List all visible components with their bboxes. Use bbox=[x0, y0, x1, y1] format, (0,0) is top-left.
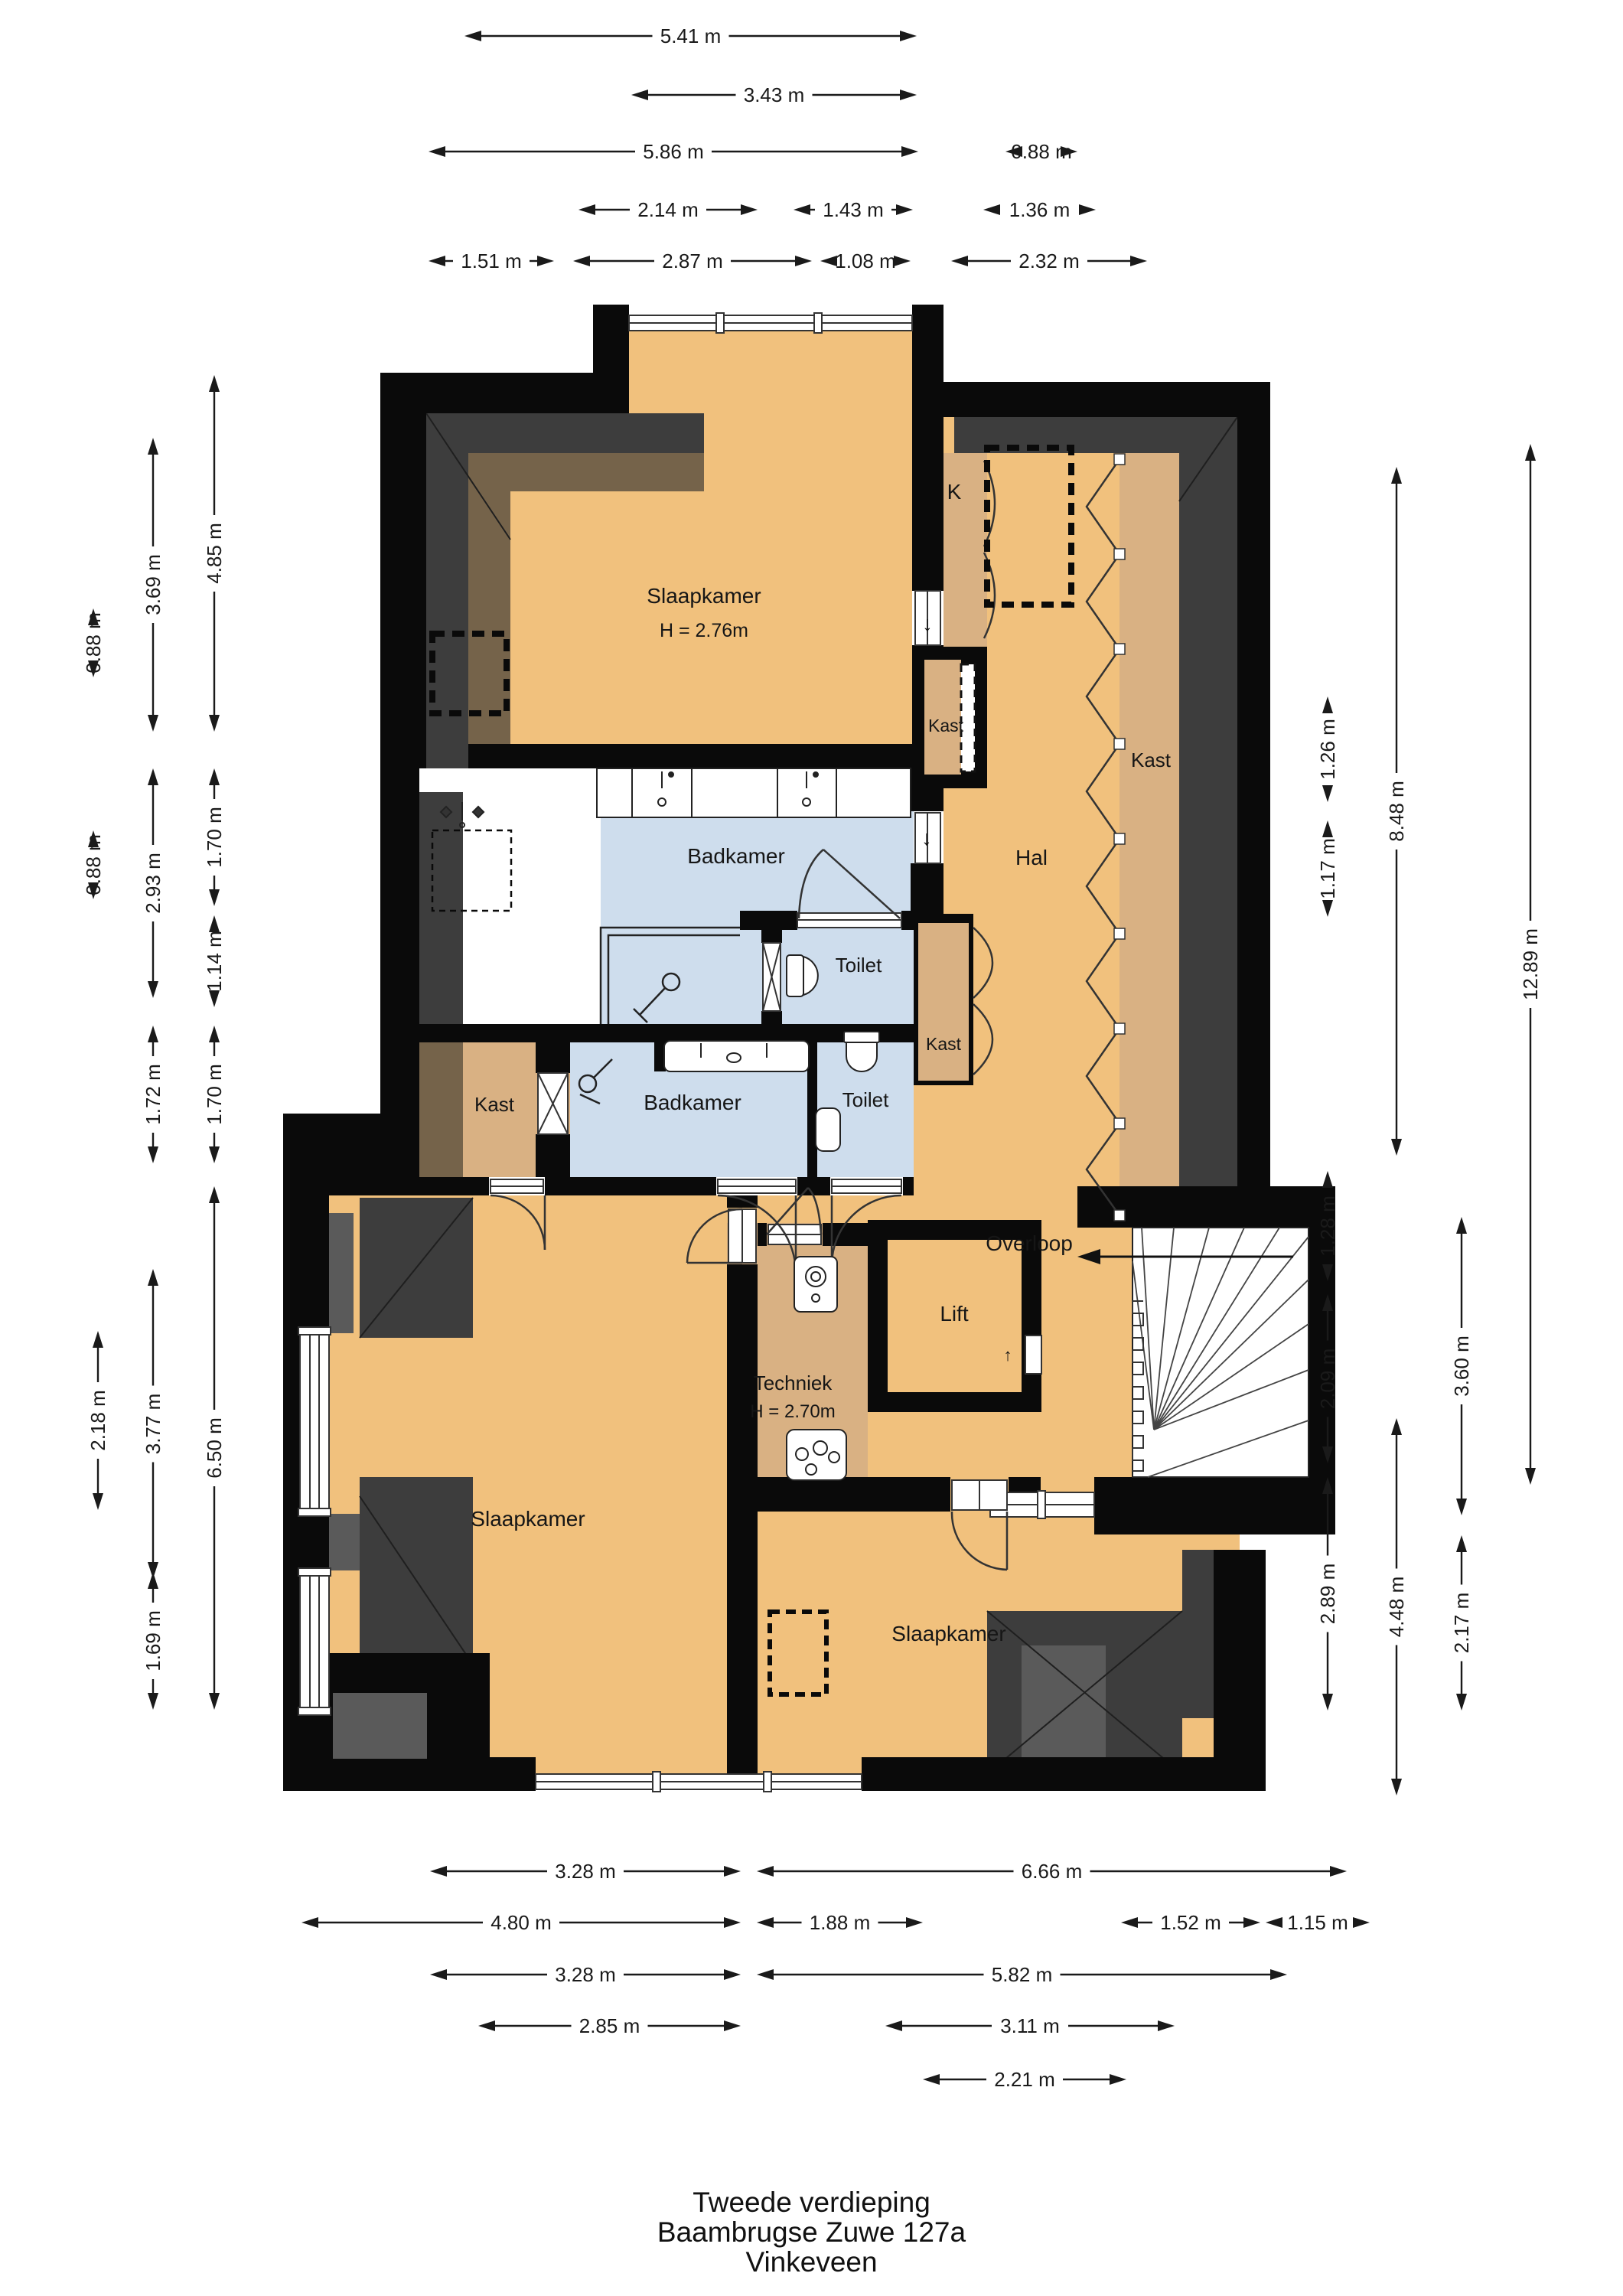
lift-direction-arrow: ↑ bbox=[1004, 1345, 1012, 1365]
techniek-boiler bbox=[794, 1257, 837, 1312]
dimension-h-6.66m: 6.66 m bbox=[757, 1860, 1347, 1883]
dimension-label: 2.17 m bbox=[1450, 1593, 1473, 1654]
window-bottom-dormer bbox=[536, 1772, 862, 1792]
dimension-label: 6.66 m bbox=[1022, 1860, 1083, 1883]
dimension-label: 2.93 m bbox=[142, 853, 165, 914]
room-label-badkamer-2: Badkamer bbox=[644, 1091, 741, 1114]
dimension-label: 1.69 m bbox=[142, 1610, 165, 1671]
plan-title: Tweede verdieping Baambrugse Zuwe 127a V… bbox=[0, 2187, 1623, 2277]
dimension-h-3.28m: 3.28 m bbox=[430, 1963, 741, 1986]
room-label-kast-mid: Kast bbox=[928, 716, 964, 735]
room-label-overloop: Overloop bbox=[986, 1231, 1073, 1255]
dimension-v-1.14m: 1.14 m bbox=[203, 915, 226, 1007]
dimension-v-1.72m: 1.72 m bbox=[142, 1026, 165, 1163]
dimension-h-2.87m: 2.87 m bbox=[573, 249, 812, 272]
room-label-slaapkamer-1-height: H = 2.76m bbox=[660, 620, 748, 641]
dimension-label: 0.88 m bbox=[82, 834, 105, 895]
window-left-2 bbox=[298, 1568, 331, 1715]
dimension-v-3.77m: 3.77 m bbox=[142, 1269, 165, 1579]
badkamer-2-sink bbox=[664, 1041, 809, 1071]
dimension-label: 4.80 m bbox=[490, 1911, 552, 1934]
techniek-washer bbox=[787, 1430, 846, 1480]
dimension-label: 1.17 m bbox=[1316, 838, 1339, 899]
room-label-kast-wardrobe-hal: Kast bbox=[1131, 748, 1172, 771]
room-label-kast-3: Kast bbox=[926, 1034, 962, 1054]
dimension-label: 1.51 m bbox=[461, 249, 522, 272]
dimension-h-1.88m: 1.88 m bbox=[757, 1911, 923, 1934]
room-label-toilet-1: Toilet bbox=[836, 954, 882, 977]
room-label-techniek-height: H = 2.70m bbox=[750, 1401, 835, 1422]
dimension-label: 2.32 m bbox=[1018, 249, 1080, 272]
dimension-label: 1.70 m bbox=[203, 1064, 226, 1125]
dimension-h-1.08m: 1.08 m bbox=[820, 249, 911, 272]
dimension-label: 6.50 m bbox=[203, 1417, 226, 1479]
dimension-label: 3.11 m bbox=[1000, 2014, 1060, 2037]
dimension-v-8.48m: 8.48 m bbox=[1385, 467, 1408, 1156]
dimension-label: 5.41 m bbox=[660, 24, 722, 47]
dimension-h-5.86m: 5.86 m bbox=[429, 140, 918, 163]
dimension-label: 3.28 m bbox=[555, 1963, 616, 1986]
dimension-v-1.69m: 1.69 m bbox=[142, 1572, 165, 1710]
dimension-label: 2.87 m bbox=[662, 249, 723, 272]
room-label-slaapkamer-2: Slaapkamer bbox=[471, 1507, 585, 1531]
dimension-label: 1.88 m bbox=[810, 1911, 871, 1934]
plan-title-city: Vinkeveen bbox=[0, 2247, 1623, 2277]
dimension-label: 0.88 m bbox=[82, 612, 105, 673]
dimension-h-2.14m: 2.14 m bbox=[578, 198, 758, 221]
floor-plan-svg: SlaapkamerH = 2.76mKKastHalBadkamerToile… bbox=[0, 0, 1623, 2296]
dimension-h-3.43m: 3.43 m bbox=[631, 83, 917, 106]
dimension-h-5.82m: 5.82 m bbox=[757, 1963, 1287, 1986]
dimension-h-1.51m: 1.51 m bbox=[429, 249, 554, 272]
dimension-h-2.21m: 2.21 m bbox=[923, 2068, 1126, 2091]
dimension-label: 1.08 m bbox=[835, 249, 896, 272]
dimension-v-1.26m: 1.26 m bbox=[1316, 696, 1339, 802]
dimension-v-3.60m: 3.60 m bbox=[1450, 1217, 1473, 1515]
badkamer-1-counter bbox=[597, 768, 911, 817]
dimension-v-2.93m: 2.93 m bbox=[142, 768, 165, 998]
room-label-hal: Hal bbox=[1015, 846, 1048, 869]
room-label-kast-2: Kast bbox=[474, 1093, 515, 1116]
dimension-label: 2.14 m bbox=[637, 198, 699, 221]
room-label-badkamer-1: Badkamer bbox=[687, 844, 785, 868]
dimension-label: 4.48 m bbox=[1385, 1577, 1408, 1638]
dimension-v-1.17m: 1.17 m bbox=[1316, 820, 1339, 917]
room-label-techniek: Techniek bbox=[754, 1371, 833, 1394]
window-left-1 bbox=[298, 1327, 331, 1516]
dimension-v-2.17m: 2.17 m bbox=[1450, 1535, 1473, 1711]
dimension-v-3.69m: 3.69 m bbox=[142, 438, 165, 732]
dimension-label: 1.43 m bbox=[823, 198, 884, 221]
dimension-label: 12.89 m bbox=[1519, 928, 1542, 1000]
dimension-label: 2.09 m bbox=[1316, 1349, 1339, 1410]
dimension-label: 8.48 m bbox=[1385, 781, 1408, 842]
dimension-label: 3.60 m bbox=[1450, 1336, 1473, 1397]
dimension-h-3.28m: 3.28 m bbox=[430, 1860, 741, 1883]
dimension-label: 0.88 m bbox=[1011, 140, 1072, 163]
dimension-v-2.18m: 2.18 m bbox=[86, 1331, 109, 1510]
down-arrow-hal-upper: ↓ bbox=[922, 612, 933, 635]
dimension-v-4.85m: 4.85 m bbox=[203, 375, 226, 732]
dimension-v-1.70m: 1.70 m bbox=[203, 1026, 226, 1163]
dimension-label: 5.82 m bbox=[992, 1963, 1053, 1986]
dimension-label: 3.69 m bbox=[142, 554, 165, 615]
dimension-label: 3.28 m bbox=[555, 1860, 616, 1883]
dimension-v-1.70m: 1.70 m bbox=[203, 768, 226, 906]
dimension-h-0.88m: 0.88 m bbox=[1005, 140, 1077, 163]
dimension-h-1.36m: 1.36 m bbox=[983, 198, 1096, 221]
room-label-slaapkamer-3: Slaapkamer bbox=[891, 1622, 1005, 1645]
dimension-h-3.11m: 3.11 m bbox=[885, 2014, 1175, 2037]
window-top-dormer bbox=[629, 313, 912, 333]
room-label-toilet-2: Toilet bbox=[842, 1088, 889, 1111]
dimension-label: 1.52 m bbox=[1160, 1911, 1221, 1934]
dimension-label: 3.43 m bbox=[744, 83, 805, 106]
dimension-h-2.85m: 2.85 m bbox=[478, 2014, 741, 2037]
dimension-label: 2.21 m bbox=[994, 2068, 1055, 2091]
room-label-lift: Lift bbox=[940, 1302, 969, 1326]
dimension-label: 4.85 m bbox=[203, 523, 226, 584]
dimension-h-1.43m: 1.43 m bbox=[794, 198, 913, 221]
dimension-label: 1.36 m bbox=[1009, 198, 1071, 221]
dimension-label: 1.28 m bbox=[1316, 1195, 1339, 1257]
dimension-h-1.52m: 1.52 m bbox=[1121, 1911, 1260, 1934]
dimension-label: 1.15 m bbox=[1287, 1911, 1348, 1934]
dimension-v-4.48m: 4.48 m bbox=[1385, 1418, 1408, 1795]
dimension-label: 1.72 m bbox=[142, 1064, 165, 1125]
dimension-h-5.41m: 5.41 m bbox=[464, 24, 917, 47]
dimension-h-1.15m: 1.15 m bbox=[1266, 1911, 1370, 1934]
dimension-h-2.32m: 2.32 m bbox=[951, 249, 1147, 272]
dimension-label: 5.86 m bbox=[643, 140, 704, 163]
down-arrow-hal-lower: ↓ bbox=[921, 827, 932, 850]
room-label-k-closet: K bbox=[947, 480, 962, 504]
dimension-label: 2.85 m bbox=[579, 2014, 640, 2037]
dimension-label: 3.77 m bbox=[142, 1394, 165, 1455]
room-label-slaapkamer-1: Slaapkamer bbox=[647, 584, 761, 608]
floor-plan-page: SlaapkamerH = 2.76mKKastHalBadkamerToile… bbox=[0, 0, 1623, 2296]
plan-title-floor: Tweede verdieping bbox=[0, 2187, 1623, 2217]
dimension-v-0.88m: 0.88 m bbox=[82, 608, 105, 677]
dimension-label: 1.70 m bbox=[203, 807, 226, 868]
dimension-v-0.88m: 0.88 m bbox=[82, 830, 105, 899]
dimension-h-4.80m: 4.80 m bbox=[301, 1911, 741, 1934]
dimension-label: 1.26 m bbox=[1316, 719, 1339, 780]
dimension-label: 2.18 m bbox=[86, 1390, 109, 1451]
dimension-v-12.89m: 12.89 m bbox=[1519, 444, 1542, 1485]
dimension-v-6.50m: 6.50 m bbox=[203, 1186, 226, 1710]
dimension-label: 1.14 m bbox=[203, 931, 226, 992]
dimension-label: 2.89 m bbox=[1316, 1564, 1339, 1625]
plan-title-address: Baambrugse Zuwe 127a bbox=[0, 2217, 1623, 2247]
